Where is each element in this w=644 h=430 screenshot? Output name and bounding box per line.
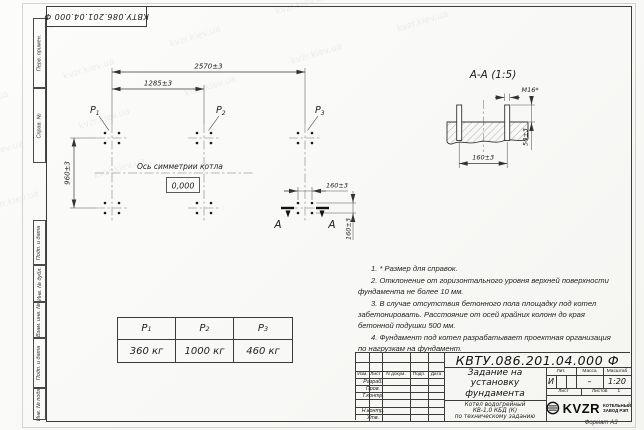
lit-value: И [546, 375, 556, 388]
dim-overall-label: 2570±3 [194, 63, 222, 71]
load-table-header-p2: P2 [176, 318, 234, 340]
kvzr-logo-icon [546, 400, 560, 416]
format-label: Формат А3 [566, 420, 636, 426]
company-cell: KVZR КОТЕЛЬНЫЙ ЗАВОД РЭП [546, 395, 631, 421]
anchor-stud-right [505, 105, 510, 141]
role-utv: Утв. [356, 414, 388, 421]
sheet-label: Лист [546, 388, 581, 395]
sheets-value: 1 [617, 389, 620, 394]
note-1: 1. * Размер для справок. [358, 263, 616, 274]
load-table-header-p1: P1 [118, 318, 176, 340]
extension-lines [70, 68, 356, 240]
section-title: А-А (1:5) [469, 69, 517, 81]
section-spacing-label: 160±3 [472, 154, 494, 162]
elevation-label: 0,000 [172, 182, 195, 191]
technical-notes: 1. * Размер для справок. 2. Отклонение о… [358, 263, 616, 355]
dim-depth-label: 960±3 [64, 161, 72, 185]
mass-label: Масса [576, 367, 603, 375]
dimension-lines [74, 72, 353, 221]
p2-label: P2 [216, 105, 226, 117]
rev-header-izm: Изм. [356, 371, 369, 378]
role-tkontr: Т.контр. [356, 392, 388, 399]
scale-value: 1:20 [603, 375, 631, 388]
drawing-sheet: kvzr.kiev.uakvzr.kiev.uakvzr.kiev.uakvzr… [0, 0, 644, 430]
role-prov: Пров. [356, 385, 388, 392]
p3-label: P3 [315, 105, 325, 117]
section-letter-right: А [327, 219, 335, 231]
axis-label: Ось симметрии котла [137, 162, 223, 171]
kvzr-logo-text: KVZR [563, 401, 600, 416]
sheets-cell: Листов 1 [581, 388, 631, 395]
p1-label: P1 [90, 105, 100, 117]
mass-value: – [576, 375, 603, 388]
load-value-p2: 1000 кг [176, 340, 234, 362]
company-tagline: КОТЕЛЬНЫЙ ЗАВОД РЭП [603, 403, 631, 413]
section-height-label: 50±3 [522, 128, 530, 146]
role-nkontr: Н.контр. [356, 407, 388, 414]
rev-header-podp: Подп. [410, 371, 428, 378]
load-point-labels: P1 P2 P3 [90, 105, 325, 131]
doc-title: Задание на установку фундамента [444, 367, 546, 400]
dim-bolt-v-label: 160±3 [345, 218, 353, 240]
thread-label: М16* [522, 86, 540, 94]
note-3: 3. В случае отсутствия бетонного пола пл… [358, 298, 616, 331]
anchor-stud-left [457, 105, 462, 141]
dim-half-label: 1285±3 [144, 80, 172, 88]
note-4: 4. Фундамент под котел разрабатывает про… [358, 332, 616, 354]
section-cut-marks: А А [273, 208, 335, 231]
scale-label: Масштаб [603, 367, 631, 375]
load-value-p3: 460 кг [234, 340, 292, 362]
dim-bolt-h-label: 160±3 [326, 182, 348, 190]
title-block: КВТУ.086.201.04.000 Ф Задание на установ… [355, 352, 630, 420]
sheets-label: Листов [592, 389, 608, 394]
equipment-name: Котел водогрейный КВ-1,0 КБД (К) по техн… [444, 400, 546, 421]
rev-header-list: Лист [369, 371, 382, 378]
load-table-header-p3: P3 [234, 318, 292, 340]
section-letter-left: А [273, 219, 281, 231]
load-table: P1 P2 P3 360 кг 1000 кг 460 кг [117, 317, 293, 363]
designation: КВТУ.086.201.04.000 Ф [444, 353, 631, 367]
load-value-p1: 360 кг [118, 340, 176, 362]
note-2: 2. Отклонение от горизонтального уровня … [358, 275, 616, 297]
rev-header-data: Дата [428, 371, 444, 378]
lit-label: Лит. [546, 367, 576, 375]
rev-header-ndokum: N докум. [382, 371, 410, 378]
role-razrab: Разраб. [356, 378, 388, 385]
